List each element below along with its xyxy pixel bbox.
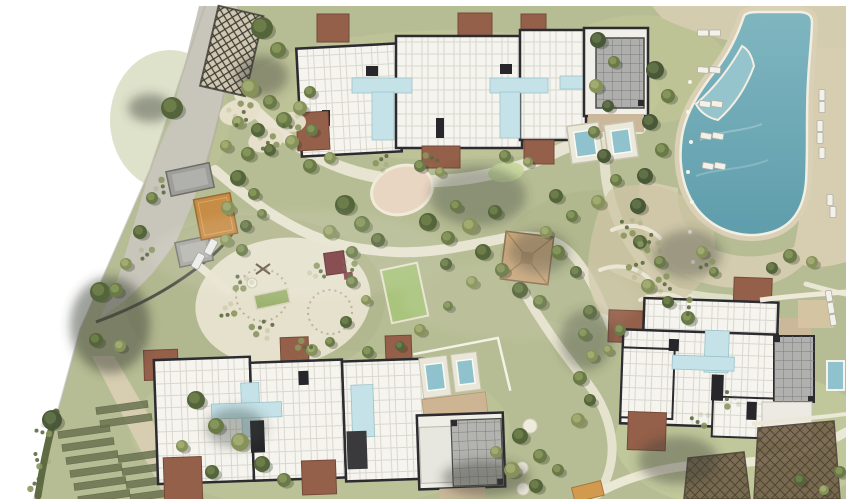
tree-highlight — [609, 57, 616, 64]
shrub-dot — [657, 248, 662, 253]
shrub-dot — [422, 152, 428, 158]
tree-highlight — [551, 190, 559, 198]
tree-highlight — [233, 435, 244, 446]
shrub-dot — [162, 191, 166, 195]
pool-water — [456, 359, 475, 385]
tree-highlight — [436, 168, 442, 174]
building-c-wing — [620, 347, 674, 419]
stair-core — [372, 92, 394, 140]
tree-highlight — [710, 268, 716, 274]
tree-highlight — [337, 197, 349, 209]
shrub-dot — [261, 147, 265, 151]
tree-highlight — [785, 250, 793, 258]
shrub-dot — [226, 313, 230, 317]
shrub-dot — [637, 269, 642, 274]
shrub-dot — [223, 305, 228, 310]
shrub-dot — [736, 402, 741, 407]
circle-item — [689, 140, 693, 144]
tree-highlight — [491, 447, 498, 454]
tree-highlight — [573, 414, 581, 422]
shrub-dot — [647, 240, 651, 244]
interior-wall — [746, 402, 757, 420]
stair-core — [672, 355, 734, 371]
tree-highlight — [91, 334, 99, 342]
shrub-dot — [298, 355, 303, 360]
tree-highlight — [232, 171, 242, 181]
shrub-dot — [153, 186, 158, 191]
shrub-dot — [625, 225, 629, 229]
tree-highlight — [490, 206, 498, 214]
lounge-chair — [830, 207, 836, 218]
tree-highlight — [362, 296, 368, 302]
tree-highlight — [326, 338, 332, 344]
tree-highlight — [249, 189, 256, 196]
shrub-dot — [41, 454, 46, 459]
shrub-dot — [621, 232, 627, 238]
shrub-dot — [249, 324, 255, 330]
tree-highlight — [593, 196, 601, 204]
stair-core — [500, 92, 520, 138]
shrub-dot — [238, 100, 244, 106]
shrub-dot — [289, 125, 293, 129]
circle-item — [686, 170, 690, 174]
lounge-chair — [709, 67, 720, 74]
site-plan-screenshot — [0, 0, 846, 499]
stair-core — [352, 78, 412, 93]
shrub-dot — [699, 265, 703, 269]
shrub-dot — [235, 123, 239, 127]
tree-highlight — [541, 227, 548, 234]
shrub-dot — [384, 154, 388, 158]
tree-highlight — [415, 161, 422, 168]
shrub-dot — [687, 305, 691, 309]
tree-highlight — [604, 346, 610, 352]
tree-highlight — [524, 158, 530, 164]
tree-highlight — [272, 43, 282, 53]
shrub-dot — [725, 390, 729, 394]
tree-highlight — [115, 341, 122, 348]
shrub-dot — [295, 344, 301, 350]
shrub-dot — [259, 128, 264, 133]
shrub-dot — [626, 264, 632, 270]
tree-highlight — [464, 219, 474, 229]
shrub-dot — [637, 241, 643, 247]
shrub-dot — [258, 136, 263, 141]
shrub-dot — [139, 247, 144, 252]
shrub-dot — [258, 326, 262, 330]
tree-highlight — [615, 325, 622, 332]
shrub-dot — [47, 421, 52, 426]
lounge-chair — [827, 195, 833, 206]
tree-highlight — [111, 284, 119, 292]
lounge-chair — [819, 90, 825, 101]
lounge-chair — [817, 121, 823, 132]
tree-highlight — [163, 99, 176, 112]
lounge-chair — [819, 148, 825, 159]
roof-hatch — [638, 100, 644, 106]
tree-highlight — [243, 148, 251, 156]
shrub-dot — [701, 423, 707, 429]
pool-water — [425, 363, 446, 391]
shrub-dot — [41, 423, 46, 428]
tree-highlight — [644, 115, 654, 125]
shrub-dot — [430, 156, 434, 160]
shrub-dot — [637, 221, 642, 226]
tree-highlight — [121, 259, 128, 266]
shrub-dot — [253, 331, 259, 337]
shrub-dot — [231, 310, 237, 316]
lounge-chair — [817, 133, 823, 144]
shrub-dot — [158, 177, 164, 183]
shrub-dot — [266, 141, 270, 145]
shrub-dot — [262, 320, 266, 324]
balcony-block — [317, 14, 349, 42]
tree-highlight — [223, 202, 231, 210]
tree-highlight — [207, 466, 215, 474]
shrub-dot — [226, 107, 231, 112]
shrub-dot — [732, 395, 737, 400]
shrub-dot — [247, 102, 253, 108]
shrub-dot — [709, 258, 715, 264]
circle-item — [690, 200, 694, 204]
shrub-dot — [704, 263, 708, 267]
tree-highlight — [325, 153, 332, 160]
interior-wall — [298, 371, 308, 385]
tree-highlight — [243, 81, 254, 92]
tree-highlight — [265, 96, 273, 104]
tree-highlight — [506, 463, 516, 473]
shrub-dot — [641, 261, 645, 265]
shrub-dot — [140, 257, 144, 261]
tree-highlight — [553, 465, 560, 472]
tree-highlight — [820, 486, 826, 492]
tree-highlight — [697, 247, 704, 254]
shrub-dot — [304, 352, 309, 357]
tree-highlight — [341, 317, 348, 324]
tree-highlight — [421, 215, 432, 226]
tree-highlight — [632, 199, 642, 209]
tree-highlight — [514, 429, 524, 439]
shrub-dot — [295, 124, 301, 130]
circle-item — [688, 80, 692, 84]
tree-highlight — [307, 125, 314, 132]
tree-highlight — [396, 342, 402, 348]
stair-core — [351, 384, 375, 437]
watermark-shape — [400, 260, 640, 340]
tree-highlight — [451, 201, 458, 208]
tree-highlight — [531, 480, 539, 488]
shrub-dot — [27, 486, 33, 492]
elevator-shaft — [500, 64, 512, 74]
tree-highlight — [415, 325, 422, 332]
shrub-dot — [270, 323, 274, 327]
shadow-blob — [638, 436, 718, 484]
tree-highlight — [767, 263, 774, 270]
tree-highlight — [589, 127, 596, 134]
shrub-dot — [37, 477, 41, 481]
shrub-dot — [264, 336, 269, 341]
shrub-dot — [373, 160, 379, 166]
tree-highlight — [535, 450, 543, 458]
tree-highlight — [663, 90, 671, 98]
shrub-dot — [686, 297, 692, 303]
shrub-dot — [620, 220, 624, 224]
shrub-dot — [32, 482, 36, 486]
lounge-chair — [710, 30, 721, 36]
shrub-dot — [704, 251, 709, 256]
tree-highlight — [287, 136, 295, 144]
lounge-chair — [819, 102, 825, 113]
elevator-shaft — [711, 374, 724, 400]
shrub-dot — [663, 282, 667, 286]
shrub-dot — [145, 253, 149, 257]
annex-roof-grid — [774, 336, 814, 402]
tree-highlight — [575, 372, 583, 380]
shrub-dot — [656, 277, 662, 283]
tree-highlight — [648, 63, 659, 74]
watermark-shape — [150, 210, 450, 300]
shrub-dot — [384, 162, 389, 167]
shrub-dot — [649, 233, 653, 237]
shrub-dot — [696, 420, 700, 424]
tree-highlight — [500, 151, 507, 158]
tree-highlight — [567, 211, 574, 218]
shrub-dot — [655, 240, 660, 245]
shrub-dot — [644, 247, 650, 253]
tree-highlight — [795, 475, 802, 482]
shrub-dot — [380, 168, 385, 173]
shrub-dot — [632, 275, 637, 280]
shrub-dot — [270, 133, 276, 139]
lounge-chair — [699, 100, 711, 107]
tree-highlight — [210, 419, 220, 429]
roof-hatch — [451, 420, 457, 426]
tree-highlight — [585, 395, 592, 402]
tree-highlight — [643, 280, 651, 288]
shrub-dot — [273, 142, 279, 148]
tree-highlight — [835, 467, 842, 474]
shrub-dot — [35, 458, 39, 462]
shrub-dot — [678, 305, 683, 310]
tree-highlight — [92, 284, 104, 296]
tree-highlight — [221, 141, 228, 148]
shrub-dot — [298, 338, 304, 344]
shrub-dot — [36, 463, 42, 469]
shrub-dot — [658, 289, 663, 294]
interior-wall — [669, 339, 679, 351]
tree-highlight — [807, 257, 814, 264]
shrub-dot — [233, 114, 238, 119]
tree-highlight — [599, 150, 607, 158]
interior-wall — [346, 431, 367, 470]
tree-highlight — [278, 113, 288, 123]
tree-highlight — [189, 393, 200, 404]
shrub-dot — [634, 263, 638, 267]
shrub-dot — [630, 218, 635, 223]
shrub-dot — [724, 403, 730, 409]
stair-core — [560, 76, 586, 89]
tree-highlight — [135, 226, 143, 234]
lounge-chair — [711, 100, 723, 107]
shrub-dot — [629, 230, 635, 236]
shrub-dot — [309, 345, 313, 349]
lounge-chair — [697, 67, 708, 74]
tree-highlight — [305, 160, 313, 168]
tree-highlight — [611, 175, 618, 182]
scene-root — [27, 6, 846, 499]
tree-highlight — [279, 474, 287, 482]
tree-highlight — [657, 144, 665, 152]
shrub-dot — [435, 158, 439, 162]
shrub-dot — [265, 328, 270, 333]
shrub-dot — [33, 452, 37, 456]
balcony-block — [301, 460, 336, 495]
balcony-block — [163, 457, 203, 499]
shrub-dot — [242, 110, 246, 114]
tree-highlight — [639, 169, 649, 179]
tree-highlight — [256, 457, 266, 467]
shrub-dot — [725, 397, 729, 401]
elevator-shaft — [366, 66, 378, 76]
tree-highlight — [655, 257, 662, 264]
circle-item — [686, 110, 690, 114]
tree-highlight — [603, 101, 610, 108]
tree-highlight — [305, 87, 312, 94]
residential-master-plan — [0, 0, 846, 499]
lounge-chair — [698, 30, 709, 36]
tree-highlight — [147, 193, 154, 200]
shrub-dot — [288, 116, 293, 121]
building-a — [296, 13, 586, 168]
tree-highlight — [253, 19, 266, 32]
shrub-dot — [46, 459, 51, 464]
tree-highlight — [592, 33, 602, 43]
tree-highlight — [663, 297, 670, 304]
shrub-dot — [706, 413, 711, 418]
pool-water — [611, 129, 632, 154]
shrub-dot — [228, 301, 233, 306]
shrub-dot — [690, 416, 694, 420]
shrub-dot — [668, 287, 672, 291]
shrub-dot — [303, 345, 307, 349]
tree-highlight — [363, 347, 370, 354]
tree-highlight — [553, 246, 561, 254]
shrub-dot — [295, 114, 300, 119]
shrub-dot — [161, 184, 165, 188]
shrub-dot — [282, 124, 286, 128]
tree-highlight — [587, 351, 594, 358]
roof-hatch — [808, 396, 814, 402]
tree-highlight — [443, 232, 451, 240]
shrub-dot — [219, 314, 223, 318]
tree-highlight — [177, 441, 184, 448]
shrub-dot — [38, 485, 43, 490]
interior-wall — [436, 118, 444, 138]
roof-hatch — [774, 336, 780, 342]
tree-highlight — [477, 245, 487, 255]
shrub-dot — [686, 312, 690, 316]
stair-core — [490, 78, 548, 93]
shrub-dot — [698, 412, 703, 417]
tree-highlight — [295, 102, 303, 110]
shrub-dot — [40, 430, 44, 434]
tree-highlight — [265, 145, 272, 152]
edge-pool — [827, 361, 844, 390]
shrub-dot — [700, 256, 705, 261]
shrub-dot — [651, 287, 656, 292]
shrub-dot — [379, 157, 383, 161]
shrub-dot — [34, 429, 38, 433]
tree-highlight — [591, 80, 599, 88]
shrub-dot — [244, 118, 248, 122]
shrub-dot — [46, 431, 52, 437]
shrub-dot — [676, 298, 681, 303]
shrub-dot — [663, 273, 669, 279]
shrub-dot — [428, 162, 433, 167]
